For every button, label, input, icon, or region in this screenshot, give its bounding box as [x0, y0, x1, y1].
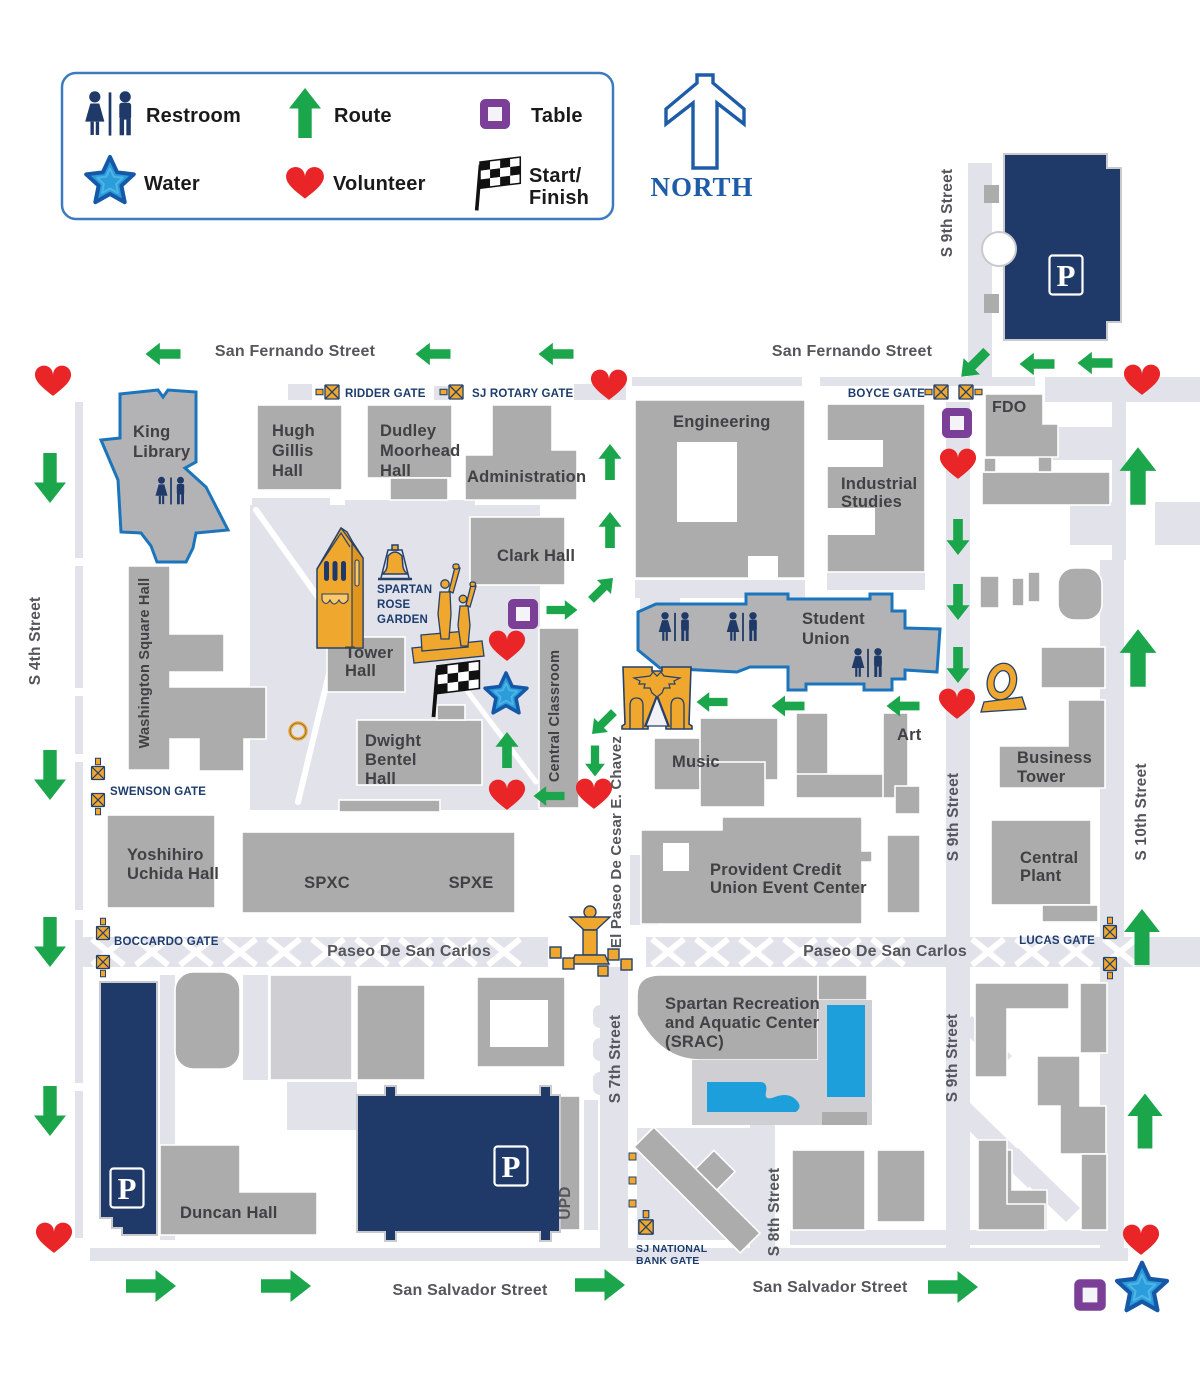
svg-text:Art: Art: [897, 726, 922, 744]
svg-text:LUCAS GATE: LUCAS GATE: [1019, 935, 1095, 947]
svg-text:Union: Union: [802, 630, 850, 648]
svg-text:Moorhead: Moorhead: [380, 442, 460, 460]
svg-text:Dudley: Dudley: [380, 422, 437, 440]
svg-text:BANK GATE: BANK GATE: [636, 1255, 699, 1267]
svg-text:GARDEN: GARDEN: [377, 614, 428, 626]
svg-text:Library: Library: [133, 443, 191, 461]
svg-text:Union Event Center: Union Event Center: [710, 879, 867, 897]
svg-text:Tower: Tower: [345, 644, 394, 662]
svg-text:Business: Business: [1017, 749, 1092, 767]
svg-text:Paseo De San Carlos: Paseo De San Carlos: [803, 943, 967, 960]
svg-text:SPXC: SPXC: [304, 874, 350, 892]
svg-text:S 8th Street: S 8th Street: [766, 1168, 783, 1257]
svg-text:Provident Credit: Provident Credit: [710, 861, 842, 879]
svg-text:S 7th Street: S 7th Street: [607, 1015, 624, 1104]
svg-text:Volunteer: Volunteer: [333, 173, 426, 195]
svg-text:Studies: Studies: [841, 493, 902, 511]
svg-text:Washington Square Hall: Washington Square Hall: [137, 578, 153, 749]
svg-text:SPARTAN: SPARTAN: [377, 584, 432, 596]
svg-text:S 9th Street: S 9th Street: [939, 169, 956, 258]
svg-text:Dwight: Dwight: [365, 732, 421, 750]
svg-text:SPXE: SPXE: [449, 874, 494, 892]
svg-text:Engineering: Engineering: [673, 413, 771, 431]
svg-text:Table: Table: [531, 105, 583, 127]
svg-text:Clark Hall: Clark Hall: [497, 547, 575, 565]
svg-text:Duncan Hall: Duncan Hall: [180, 1204, 278, 1222]
svg-text:Central: Central: [1020, 849, 1078, 867]
svg-text:Administration: Administration: [467, 468, 586, 486]
svg-text:(SRAC): (SRAC): [665, 1033, 724, 1051]
svg-text:Plant: Plant: [1020, 867, 1062, 885]
svg-text:Spartan Recreation: Spartan Recreation: [665, 995, 820, 1013]
svg-text:Industrial: Industrial: [841, 475, 917, 493]
svg-text:Hall: Hall: [365, 770, 396, 788]
svg-text:Paseo De San Carlos: Paseo De San Carlos: [327, 943, 491, 960]
svg-text:SJ ROTARY GATE: SJ ROTARY GATE: [472, 388, 574, 400]
svg-text:SWENSON GATE: SWENSON GATE: [110, 786, 206, 798]
svg-text:Student: Student: [802, 610, 865, 628]
svg-text:San Fernando Street: San Fernando Street: [772, 343, 933, 360]
svg-text:RIDDER GATE: RIDDER GATE: [345, 388, 426, 400]
svg-text:Bentel: Bentel: [365, 751, 417, 769]
svg-text:and Aquatic Center: and Aquatic Center: [665, 1014, 820, 1032]
svg-text:Finish: Finish: [529, 187, 589, 209]
svg-text:San Fernando Street: San Fernando Street: [215, 343, 376, 360]
svg-text:San Salvador Street: San Salvador Street: [753, 1279, 908, 1296]
svg-text:Uchida Hall: Uchida Hall: [127, 865, 219, 883]
svg-text:Central Classroom: Central Classroom: [547, 650, 563, 782]
svg-text:FDO: FDO: [992, 399, 1026, 416]
svg-text:SJ NATIONAL: SJ NATIONAL: [636, 1243, 708, 1255]
svg-text:Tower: Tower: [1017, 768, 1066, 786]
svg-text:ROSE: ROSE: [377, 599, 411, 611]
svg-text:San Salvador Street: San Salvador Street: [393, 1282, 548, 1299]
svg-text:BOCCARDO GATE: BOCCARDO GATE: [114, 936, 219, 948]
svg-text:Music: Music: [672, 753, 720, 771]
svg-text:Yoshihiro: Yoshihiro: [127, 846, 204, 864]
svg-text:Hall: Hall: [380, 462, 411, 480]
svg-text:Route: Route: [334, 105, 392, 127]
svg-text:NORTH: NORTH: [650, 172, 753, 202]
svg-text:BOYCE GATE: BOYCE GATE: [848, 388, 925, 400]
svg-text:El Paseo De Cesar E. Chavez: El Paseo De Cesar E. Chavez: [608, 736, 625, 948]
svg-text:S 4th Street: S 4th Street: [27, 597, 44, 686]
svg-text:King: King: [133, 423, 170, 441]
svg-text:UPD: UPD: [557, 1186, 574, 1219]
svg-text:Gillis: Gillis: [272, 442, 314, 460]
svg-text:Hugh: Hugh: [272, 422, 315, 440]
svg-text:Water: Water: [144, 173, 200, 195]
svg-text:S 9th Street: S 9th Street: [945, 773, 962, 862]
svg-text:S 9th Street: S 9th Street: [944, 1014, 961, 1103]
svg-text:Restroom: Restroom: [146, 105, 241, 127]
svg-text:Hall: Hall: [345, 662, 376, 680]
svg-text:Hall: Hall: [272, 462, 303, 480]
svg-text:Start/: Start/: [529, 165, 582, 187]
svg-text:S 10th Street: S 10th Street: [1133, 763, 1150, 860]
